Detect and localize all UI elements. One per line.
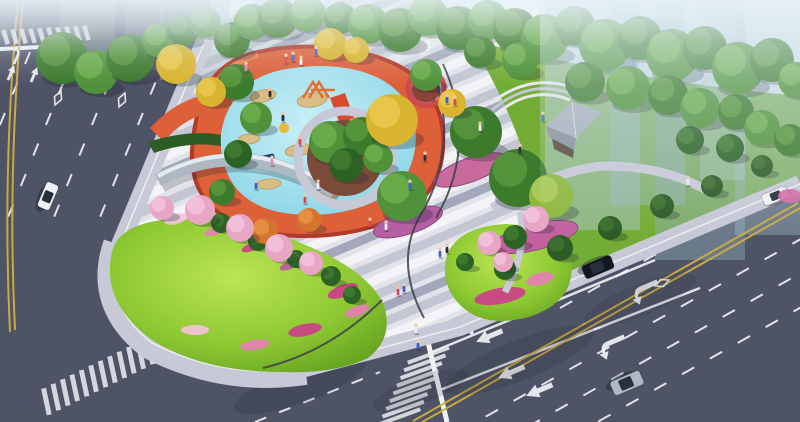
pedestrian-shadow (298, 145, 303, 147)
tree-canopy-highlight (254, 219, 270, 235)
pedestrian-head (402, 283, 405, 286)
flower-patch (181, 325, 209, 335)
tree-canopy-highlight (345, 119, 368, 142)
pedestrian-head (254, 180, 257, 183)
tree-canopy-highlight (331, 150, 351, 170)
tree-canopy-highlight (151, 197, 165, 211)
pedestrian-head (438, 248, 441, 251)
tree-canopy-highlight (380, 174, 410, 204)
pedestrian-head (384, 221, 387, 224)
pedestrian-shadow (303, 203, 308, 205)
pedestrian-body (446, 247, 449, 253)
pedestrian-shadow (384, 230, 389, 232)
pedestrian-shadow (396, 295, 401, 297)
pedestrian-body (304, 197, 307, 203)
tree-canopy-highlight (457, 254, 468, 265)
pedestrian-body (415, 327, 418, 333)
tree-canopy-highlight (300, 252, 314, 266)
pedestrian-shadow (518, 153, 523, 155)
pedestrian-head (445, 94, 448, 97)
pedestrian-head (423, 152, 426, 155)
pedestrian-shadow (270, 165, 275, 167)
pedestrian-shadow (281, 121, 286, 123)
park-aerial-rendering (0, 0, 800, 422)
pedestrian-shadow (438, 257, 443, 259)
pedestrian-body (424, 155, 427, 161)
pedestrian-body (385, 224, 388, 230)
pedestrian-shadow (316, 189, 321, 191)
tree-canopy-highlight (312, 123, 337, 148)
pedestrian-body (439, 251, 442, 257)
pedestrian-head (368, 218, 371, 221)
pedestrian-shadow (402, 292, 407, 294)
pedestrian-body (255, 183, 258, 189)
pedestrian-head (416, 340, 419, 343)
pedestrian-head (316, 180, 319, 183)
tree-canopy-highlight (504, 226, 518, 240)
pedestrian-shadow (478, 131, 483, 133)
pedestrian-shadow (368, 227, 373, 229)
tree-canopy-highlight (187, 197, 205, 215)
top-mist-overlay (0, 0, 800, 85)
tree-canopy-highlight (211, 180, 227, 196)
pedestrian-head (518, 144, 521, 147)
pedestrian-body (271, 159, 274, 165)
pedestrian-shadow (254, 189, 259, 191)
tree-canopy-highlight (369, 97, 400, 128)
pedestrian-body (397, 289, 400, 295)
pedestrian-head (453, 96, 456, 99)
pedestrian-body (519, 147, 522, 153)
pedestrian-body (446, 97, 449, 103)
pedestrian-body (403, 286, 406, 292)
pedestrian-shadow (268, 97, 273, 99)
pedestrian-shadow (408, 189, 413, 191)
pedestrian-head (298, 136, 301, 139)
pedestrian-body (282, 115, 285, 121)
pedestrian-head (478, 122, 481, 125)
tree-canopy-highlight (478, 232, 492, 246)
pedestrian-head (414, 324, 417, 327)
pedestrian-head (281, 112, 284, 115)
pedestrian-body (454, 99, 457, 105)
tree-canopy-highlight (492, 152, 527, 187)
tree-canopy-highlight (525, 207, 541, 223)
pedestrian-head (396, 286, 399, 289)
pedestrian-shadow (416, 349, 421, 351)
tree-canopy-highlight (228, 215, 245, 232)
pedestrian-body (369, 221, 372, 227)
play-dome (279, 123, 289, 133)
pedestrian-head (408, 180, 411, 183)
pedestrian-head (445, 244, 448, 247)
pedestrian-body (479, 125, 482, 131)
pedestrian-shadow (423, 161, 428, 163)
pedestrian-head (270, 156, 273, 159)
tree-canopy-highlight (494, 253, 506, 265)
pedestrian-head (268, 88, 271, 91)
pedestrian-shadow (445, 103, 450, 105)
pedestrian-body (299, 139, 302, 145)
tree-canopy-highlight (344, 287, 355, 298)
tree-canopy-highlight (549, 236, 565, 252)
tree-canopy-highlight (226, 141, 243, 158)
pedestrian-shadow (414, 333, 419, 335)
tree-canopy-highlight (267, 235, 284, 252)
rendering-canvas (0, 0, 800, 422)
pedestrian-body (269, 91, 272, 97)
pedestrian-body (417, 343, 420, 349)
tree-canopy-highlight (298, 209, 312, 223)
tree-canopy-highlight (242, 104, 261, 123)
tree-canopy-highlight (365, 145, 383, 163)
pedestrian-head (303, 194, 306, 197)
pedestrian-shadow (453, 105, 458, 107)
pedestrian-body (409, 183, 412, 189)
pedestrian-shadow (445, 253, 450, 255)
pedestrian-body (317, 183, 320, 189)
